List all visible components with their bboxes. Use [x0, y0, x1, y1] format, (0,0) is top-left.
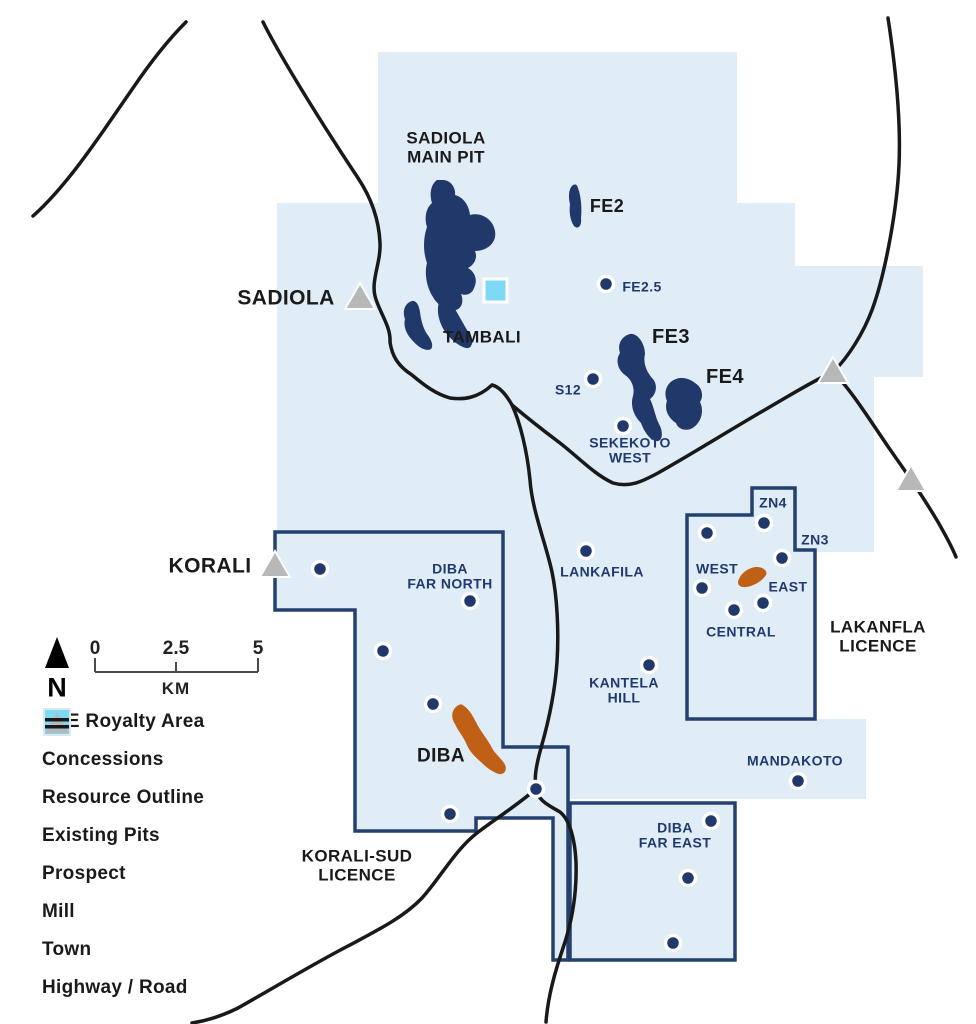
town-marker — [896, 465, 926, 491]
legend-item-resource-outline: Resource Outline — [42, 783, 205, 813]
prospect-dot — [756, 596, 771, 611]
north-arrow-icon — [45, 637, 69, 668]
prospect-dot — [599, 277, 614, 292]
mill-marker — [484, 279, 507, 302]
prospect-dot — [426, 697, 441, 712]
scale-unit: KM — [162, 679, 190, 699]
legend-label: Town — [42, 939, 91, 961]
legend-label: Existing Pits — [42, 825, 160, 847]
prospect-dot — [681, 871, 696, 886]
legend-item-concessions: Concessions — [42, 745, 205, 775]
legend-label: Resource Outline — [42, 787, 204, 809]
legend-label: Highway / Road — [42, 977, 188, 999]
legend-item-prospect: Prospect — [42, 859, 205, 889]
lakanfla-royalty-outline — [687, 488, 815, 719]
legend-label: Concessions — [42, 749, 164, 771]
legend-label: Mill — [42, 901, 75, 923]
prospect-dot — [529, 782, 544, 797]
scale-tick-0: 0 — [90, 638, 101, 660]
highway-road-swatch-icon — [42, 707, 72, 737]
scale-tick-2-5: 2.5 — [163, 638, 189, 660]
prospect-dot — [666, 936, 681, 951]
scale-bar — [95, 658, 258, 672]
scale-tick-5: 5 — [253, 638, 264, 660]
prospect-dot — [579, 544, 594, 559]
prospect-dot — [704, 814, 719, 829]
legend-item-town: Town — [42, 935, 205, 965]
legend-item-existing-pits: Existing Pits — [42, 821, 205, 851]
road-northwest — [33, 22, 186, 216]
legend: ELE Royalty Area Concessions Resource Ou… — [42, 707, 205, 1003]
legend-label: Prospect — [42, 863, 126, 885]
prospect-dot — [727, 603, 742, 618]
prospect-dot — [376, 644, 391, 659]
prospect-dot — [443, 807, 458, 822]
prospect-dot — [700, 526, 715, 541]
prospect-dot — [586, 372, 601, 387]
north-label: N — [47, 673, 67, 704]
prospect-dot — [313, 562, 328, 577]
prospect-dot — [695, 581, 710, 596]
prospect-dot — [463, 594, 478, 609]
prospect-dot — [642, 658, 657, 673]
legend-item-mill: Mill — [42, 897, 205, 927]
prospect-dot — [616, 419, 631, 434]
legend-item-highway-road: Highway / Road — [42, 973, 205, 1003]
prospect-dot — [757, 516, 772, 531]
prospect-dot — [791, 774, 806, 789]
map-canvas: FE2.5S12SEKEKOTOWESTLANKAFILAKANTELAHILL… — [0, 0, 976, 1024]
prospect-dot — [775, 551, 790, 566]
